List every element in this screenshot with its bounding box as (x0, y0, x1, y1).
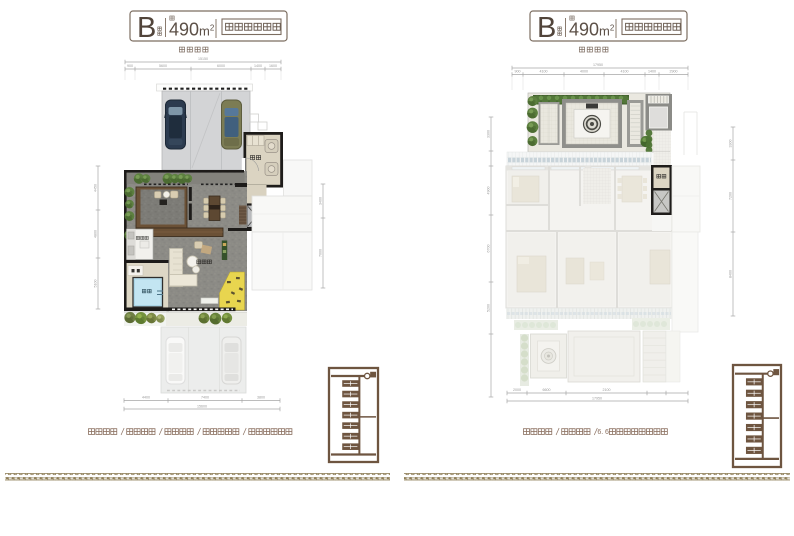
svg-text:900: 900 (127, 64, 133, 68)
svg-text:1400: 1400 (648, 70, 656, 74)
svg-text:4900: 4900 (487, 187, 491, 195)
svg-text:6: 6 (605, 429, 609, 436)
svg-text:5100: 5100 (94, 280, 98, 288)
svg-text:4000: 4000 (580, 70, 588, 74)
svg-text:B: B (137, 12, 156, 44)
svg-text:4450: 4450 (94, 184, 98, 192)
svg-text:7000: 7000 (319, 249, 323, 257)
svg-text:5200: 5200 (487, 304, 491, 312)
svg-text:17950: 17950 (592, 396, 602, 400)
svg-text:4100: 4100 (621, 70, 629, 74)
svg-text:2100: 2100 (603, 388, 611, 392)
svg-text:6600: 6600 (543, 388, 551, 392)
svg-text:17950: 17950 (593, 63, 603, 67)
svg-text:B: B (537, 12, 556, 44)
svg-text:.: . (601, 429, 603, 436)
svg-text:15600: 15600 (197, 404, 207, 408)
svg-text:2900: 2900 (670, 70, 678, 74)
svg-text:4800: 4800 (94, 230, 98, 238)
svg-text:3400: 3400 (319, 197, 323, 205)
svg-text:5600: 5600 (159, 64, 167, 68)
svg-text:4400: 4400 (142, 396, 150, 400)
svg-text:7400: 7400 (201, 396, 209, 400)
svg-text:3300: 3300 (487, 130, 491, 138)
svg-text:2000: 2000 (513, 388, 521, 392)
svg-text:3800: 3800 (257, 396, 265, 400)
svg-text:15150: 15150 (198, 57, 208, 61)
svg-text:6700: 6700 (487, 245, 491, 253)
svg-text:4100: 4100 (540, 70, 548, 74)
svg-text:1600: 1600 (269, 64, 277, 68)
svg-text:7200: 7200 (729, 192, 733, 200)
svg-text:900: 900 (515, 70, 521, 74)
svg-text:6000: 6000 (217, 64, 225, 68)
svg-text:1400: 1400 (254, 64, 262, 68)
svg-text:3300: 3300 (729, 140, 733, 148)
svg-text:8400: 8400 (729, 270, 733, 278)
